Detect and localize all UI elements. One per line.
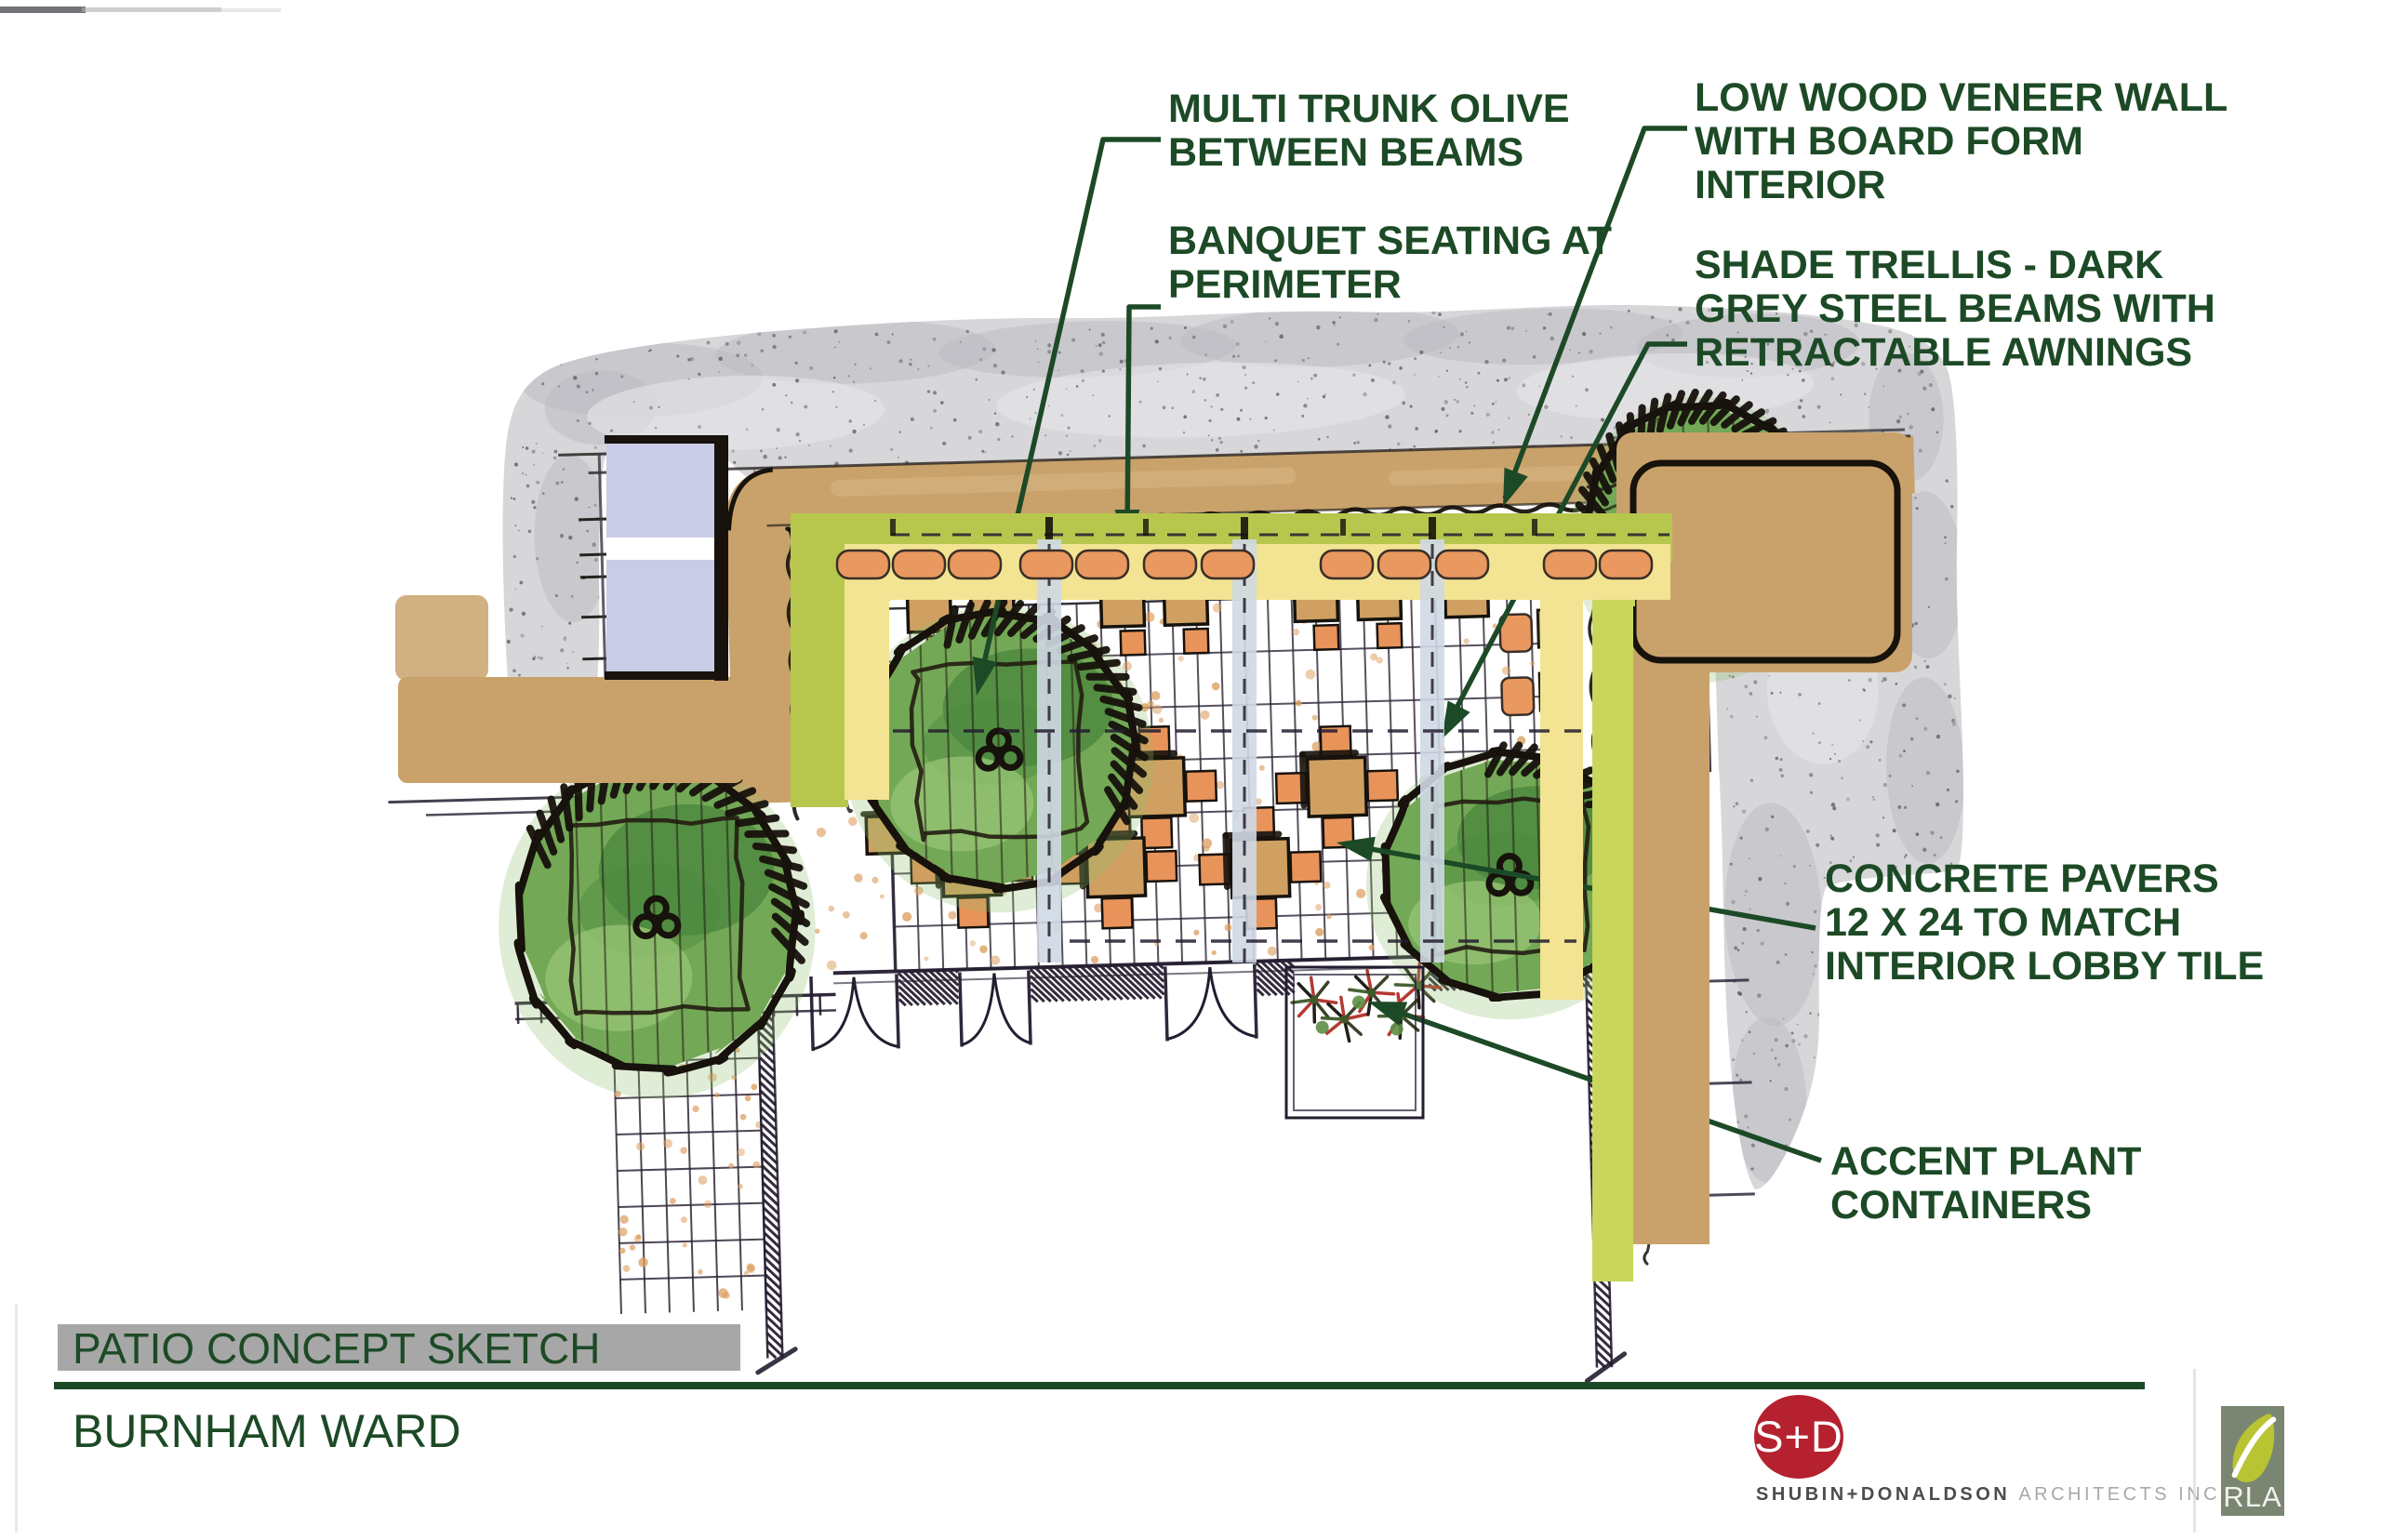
sheet-title: PATIO CONCEPT SKETCH [73, 1326, 600, 1371]
label-accent-plants: ACCENT PLANT CONTAINERS [1830, 1140, 2141, 1228]
leaf-icon [2221, 1406, 2284, 1492]
sheet: MULTI TRUNK OLIVE BETWEEN BEAMS BANQUET … [0, 0, 2381, 1540]
title-rule [54, 1382, 2145, 1389]
scan-artifact-right [2193, 1369, 2196, 1533]
rla-logo: RLA [2221, 1406, 2284, 1516]
title-bar: PATIO CONCEPT SKETCH [58, 1324, 740, 1371]
firm-name-secondary: ARCHITECTS INC. [2018, 1484, 2228, 1505]
sd-logo: S+D [1754, 1395, 1843, 1479]
label-concrete-pavers: CONCRETE PAVERS 12 X 24 TO MATCH INTERIO… [1825, 857, 2264, 989]
scan-artifact-left [15, 1304, 18, 1533]
firm-name: SHUBIN+DONALDSON ARCHITECTS INC. [1756, 1484, 2228, 1506]
label-low-wood-wall: LOW WOOD VENEER WALL WITH BOARD FORM INT… [1695, 76, 2228, 207]
label-multi-trunk-olive: MULTI TRUNK OLIVE BETWEEN BEAMS [1168, 87, 1570, 175]
sd-monogram: S+D [1754, 1395, 1843, 1479]
label-shade-trellis: SHADE TRELLIS - DARK GREY STEEL BEAMS WI… [1695, 244, 2215, 375]
project-name: BURNHAM WARD [73, 1406, 461, 1456]
rla-monogram: RLA [2221, 1480, 2284, 1514]
label-banquet-seating: BANQUET SEATING AT PERIMETER [1168, 219, 1612, 307]
firm-name-primary: SHUBIN+DONALDSON [1756, 1484, 2010, 1505]
